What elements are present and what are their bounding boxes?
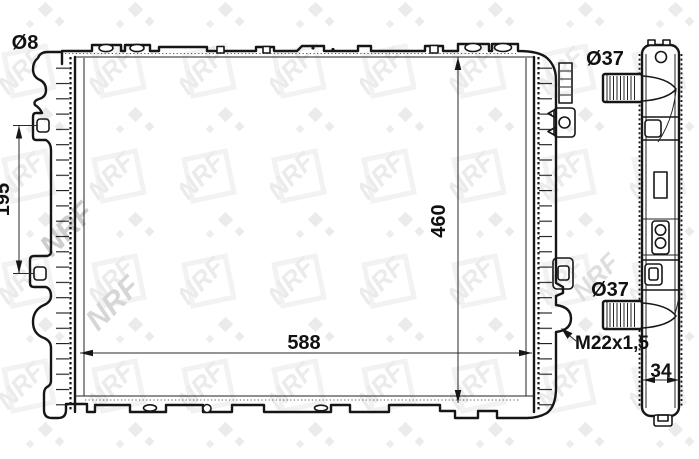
side-slot [654, 172, 667, 198]
dim-core-height-label: 460 [428, 204, 450, 237]
dim-hole-diameter-label: Ø8 [12, 32, 39, 54]
side-top-hole [656, 52, 667, 63]
dim-drain-thread-label: M22x1,5 [575, 333, 649, 354]
dim-depth-label: 34 [650, 361, 672, 382]
dim-inlet-diameter-label: Ø37 [586, 48, 624, 70]
dim-core-width-label: 588 [287, 332, 320, 354]
side-bottom-foot [654, 415, 672, 426]
dim-bracket-spacing-label: 195 [0, 183, 14, 216]
radiator-technical-drawing: NRF NRF NRF NRF [0, 0, 699, 459]
drawing-canvas: NRF NRF NRF NRF [0, 0, 699, 459]
dim-outlet-diameter-label: Ø37 [591, 279, 629, 301]
